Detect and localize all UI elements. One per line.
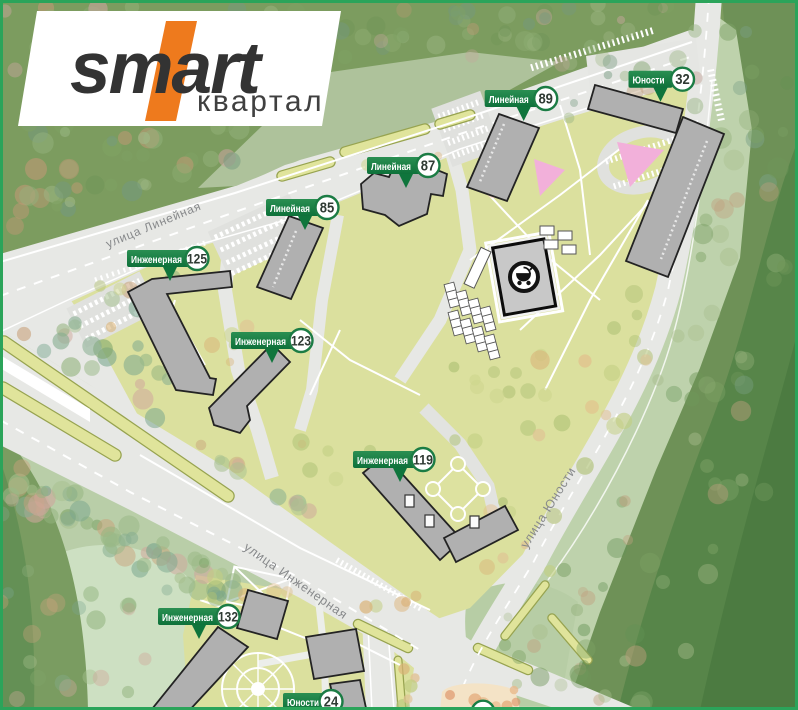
svg-text:Линейная: Линейная [270,203,310,215]
svg-text:Инженерная: Инженерная [235,336,286,348]
svg-text:32: 32 [675,72,690,88]
svg-text:125: 125 [187,251,207,267]
svg-text:Юности: Юности [633,75,665,87]
svg-text:Инженерная: Инженерная [162,612,213,624]
svg-text:Линейная: Линейная [489,94,529,106]
svg-text:123: 123 [291,333,311,349]
svg-text:Линейная: Линейная [371,161,411,173]
svg-text:квартал: квартал [197,85,324,118]
svg-text:119: 119 [413,452,433,468]
svg-text:85: 85 [320,201,335,217]
svg-text:Инженерная: Инженерная [357,455,408,467]
svg-text:132: 132 [218,609,238,625]
svg-text:87: 87 [421,159,436,175]
svg-text:89: 89 [538,92,553,108]
svg-text:Инженерная: Инженерная [131,254,182,266]
